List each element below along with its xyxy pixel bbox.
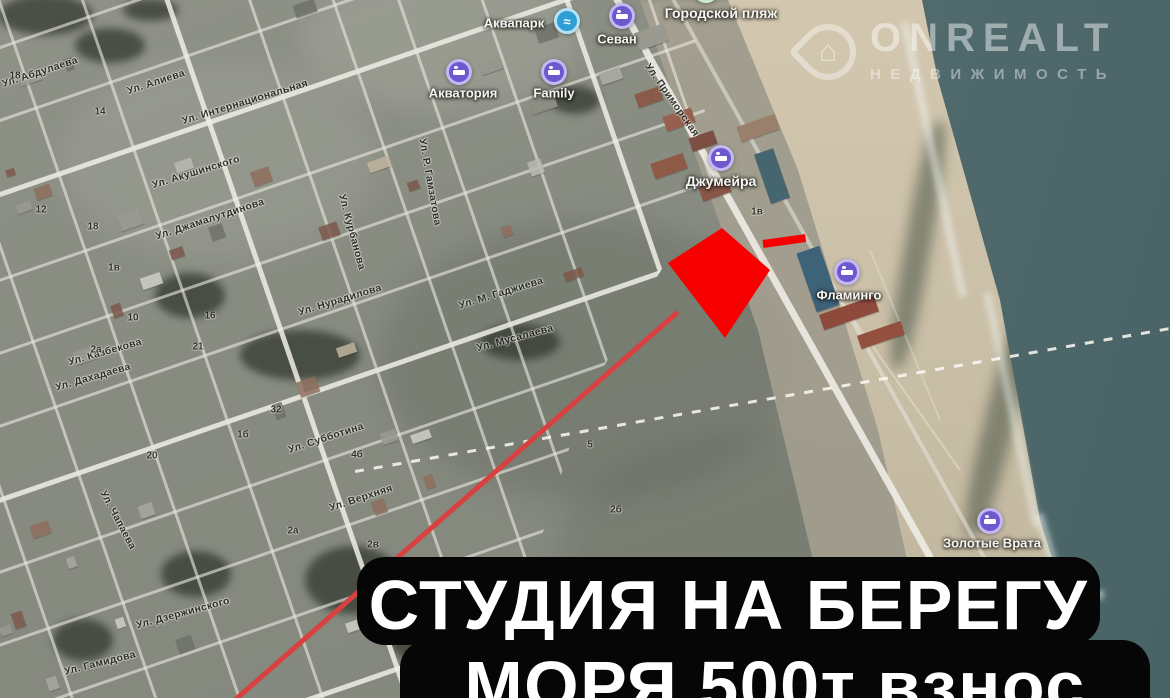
poi-label: Акватория	[429, 86, 498, 101]
ad-banner-row1: СТУДИЯ НА БЕРЕГУ	[357, 557, 1100, 645]
onrealt-watermark: ⌂ ONREALT НЕДВИЖИМОСТЬ	[800, 18, 1116, 82]
bed-icon	[715, 156, 727, 161]
beach-icon[interactable]	[693, 0, 719, 3]
hotel-pin[interactable]	[834, 259, 860, 285]
hotel-pin[interactable]	[977, 508, 1003, 534]
poi-label: Джумейра	[686, 173, 757, 189]
hotel-pin[interactable]	[609, 3, 635, 29]
poi-label: Фламинго	[817, 288, 882, 303]
bed-icon	[616, 14, 628, 19]
bed-icon	[841, 270, 853, 275]
waterslide-icon[interactable]: ≈	[554, 8, 580, 34]
ad-banner-text-line1: СТУДИЯ НА БЕРЕГУ	[357, 565, 1100, 645]
poi-label: Family	[533, 86, 574, 101]
house-glyph: ⌂	[806, 30, 850, 74]
ad-banner-text-line2: МОРЯ 500т взнос	[400, 646, 1150, 698]
watermark-text: ONREALT НЕДВИЖИМОСТЬ	[870, 18, 1116, 82]
poi-label: Аквапарк	[484, 16, 544, 31]
hotel-pin[interactable]	[708, 145, 734, 171]
bed-icon	[453, 70, 465, 75]
hotel-pin[interactable]	[446, 59, 472, 85]
poi-label: Севан	[597, 32, 637, 47]
ad-banner-row2: МОРЯ 500т взнос	[400, 640, 1150, 698]
bed-icon	[984, 519, 996, 524]
brand-name: ONREALT	[870, 18, 1116, 58]
brand-subtitle: НЕДВИЖИМОСТЬ	[870, 67, 1116, 82]
hotel-pin[interactable]	[541, 59, 567, 85]
poi-label: Городской пляж	[665, 5, 778, 21]
real-estate-map-ad: Ул. АбдулаеваУл. АлиеваУл. Интернационал…	[0, 0, 1170, 698]
house-pin-icon: ⌂	[788, 12, 867, 91]
bed-icon	[548, 70, 560, 75]
poi-label: Золотые Врата	[943, 536, 1041, 551]
